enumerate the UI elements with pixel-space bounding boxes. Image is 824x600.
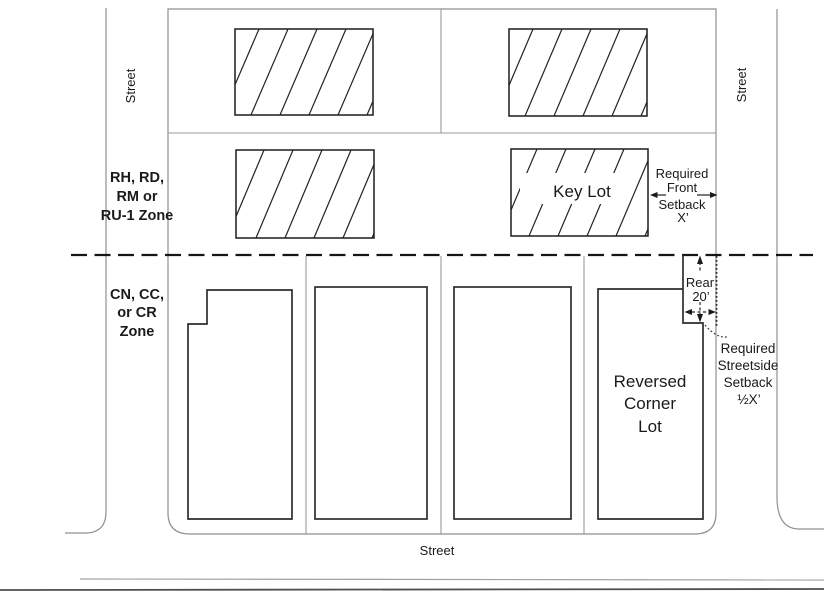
- svg-text:RH, RD,: RH, RD,: [110, 170, 164, 186]
- svg-text:½X’: ½X’: [737, 392, 760, 407]
- svg-text:Required: Required: [721, 341, 776, 356]
- svg-text:CN, CC,: CN, CC,: [110, 287, 164, 303]
- svg-text:Street: Street: [123, 68, 138, 103]
- svg-text:X’: X’: [677, 210, 689, 225]
- svg-text:Reversed: Reversed: [614, 372, 687, 391]
- svg-text:Street: Street: [734, 67, 749, 102]
- svg-text:Lot: Lot: [638, 417, 662, 436]
- svg-text:Key Lot: Key Lot: [553, 182, 611, 201]
- svg-text:Corner: Corner: [624, 394, 676, 413]
- svg-text:20’: 20’: [692, 289, 709, 304]
- svg-text:or CR: or CR: [117, 305, 157, 321]
- svg-text:Rear: Rear: [686, 275, 715, 290]
- svg-text:RM or: RM or: [116, 189, 157, 205]
- svg-text:Front: Front: [667, 180, 698, 195]
- svg-text:Zone: Zone: [120, 324, 155, 340]
- svg-text:RU-1 Zone: RU-1 Zone: [101, 208, 174, 224]
- svg-text:Streetside: Streetside: [718, 358, 779, 373]
- svg-text:Required: Required: [656, 166, 709, 181]
- svg-text:Setback: Setback: [724, 375, 773, 390]
- svg-text:Street: Street: [420, 543, 455, 558]
